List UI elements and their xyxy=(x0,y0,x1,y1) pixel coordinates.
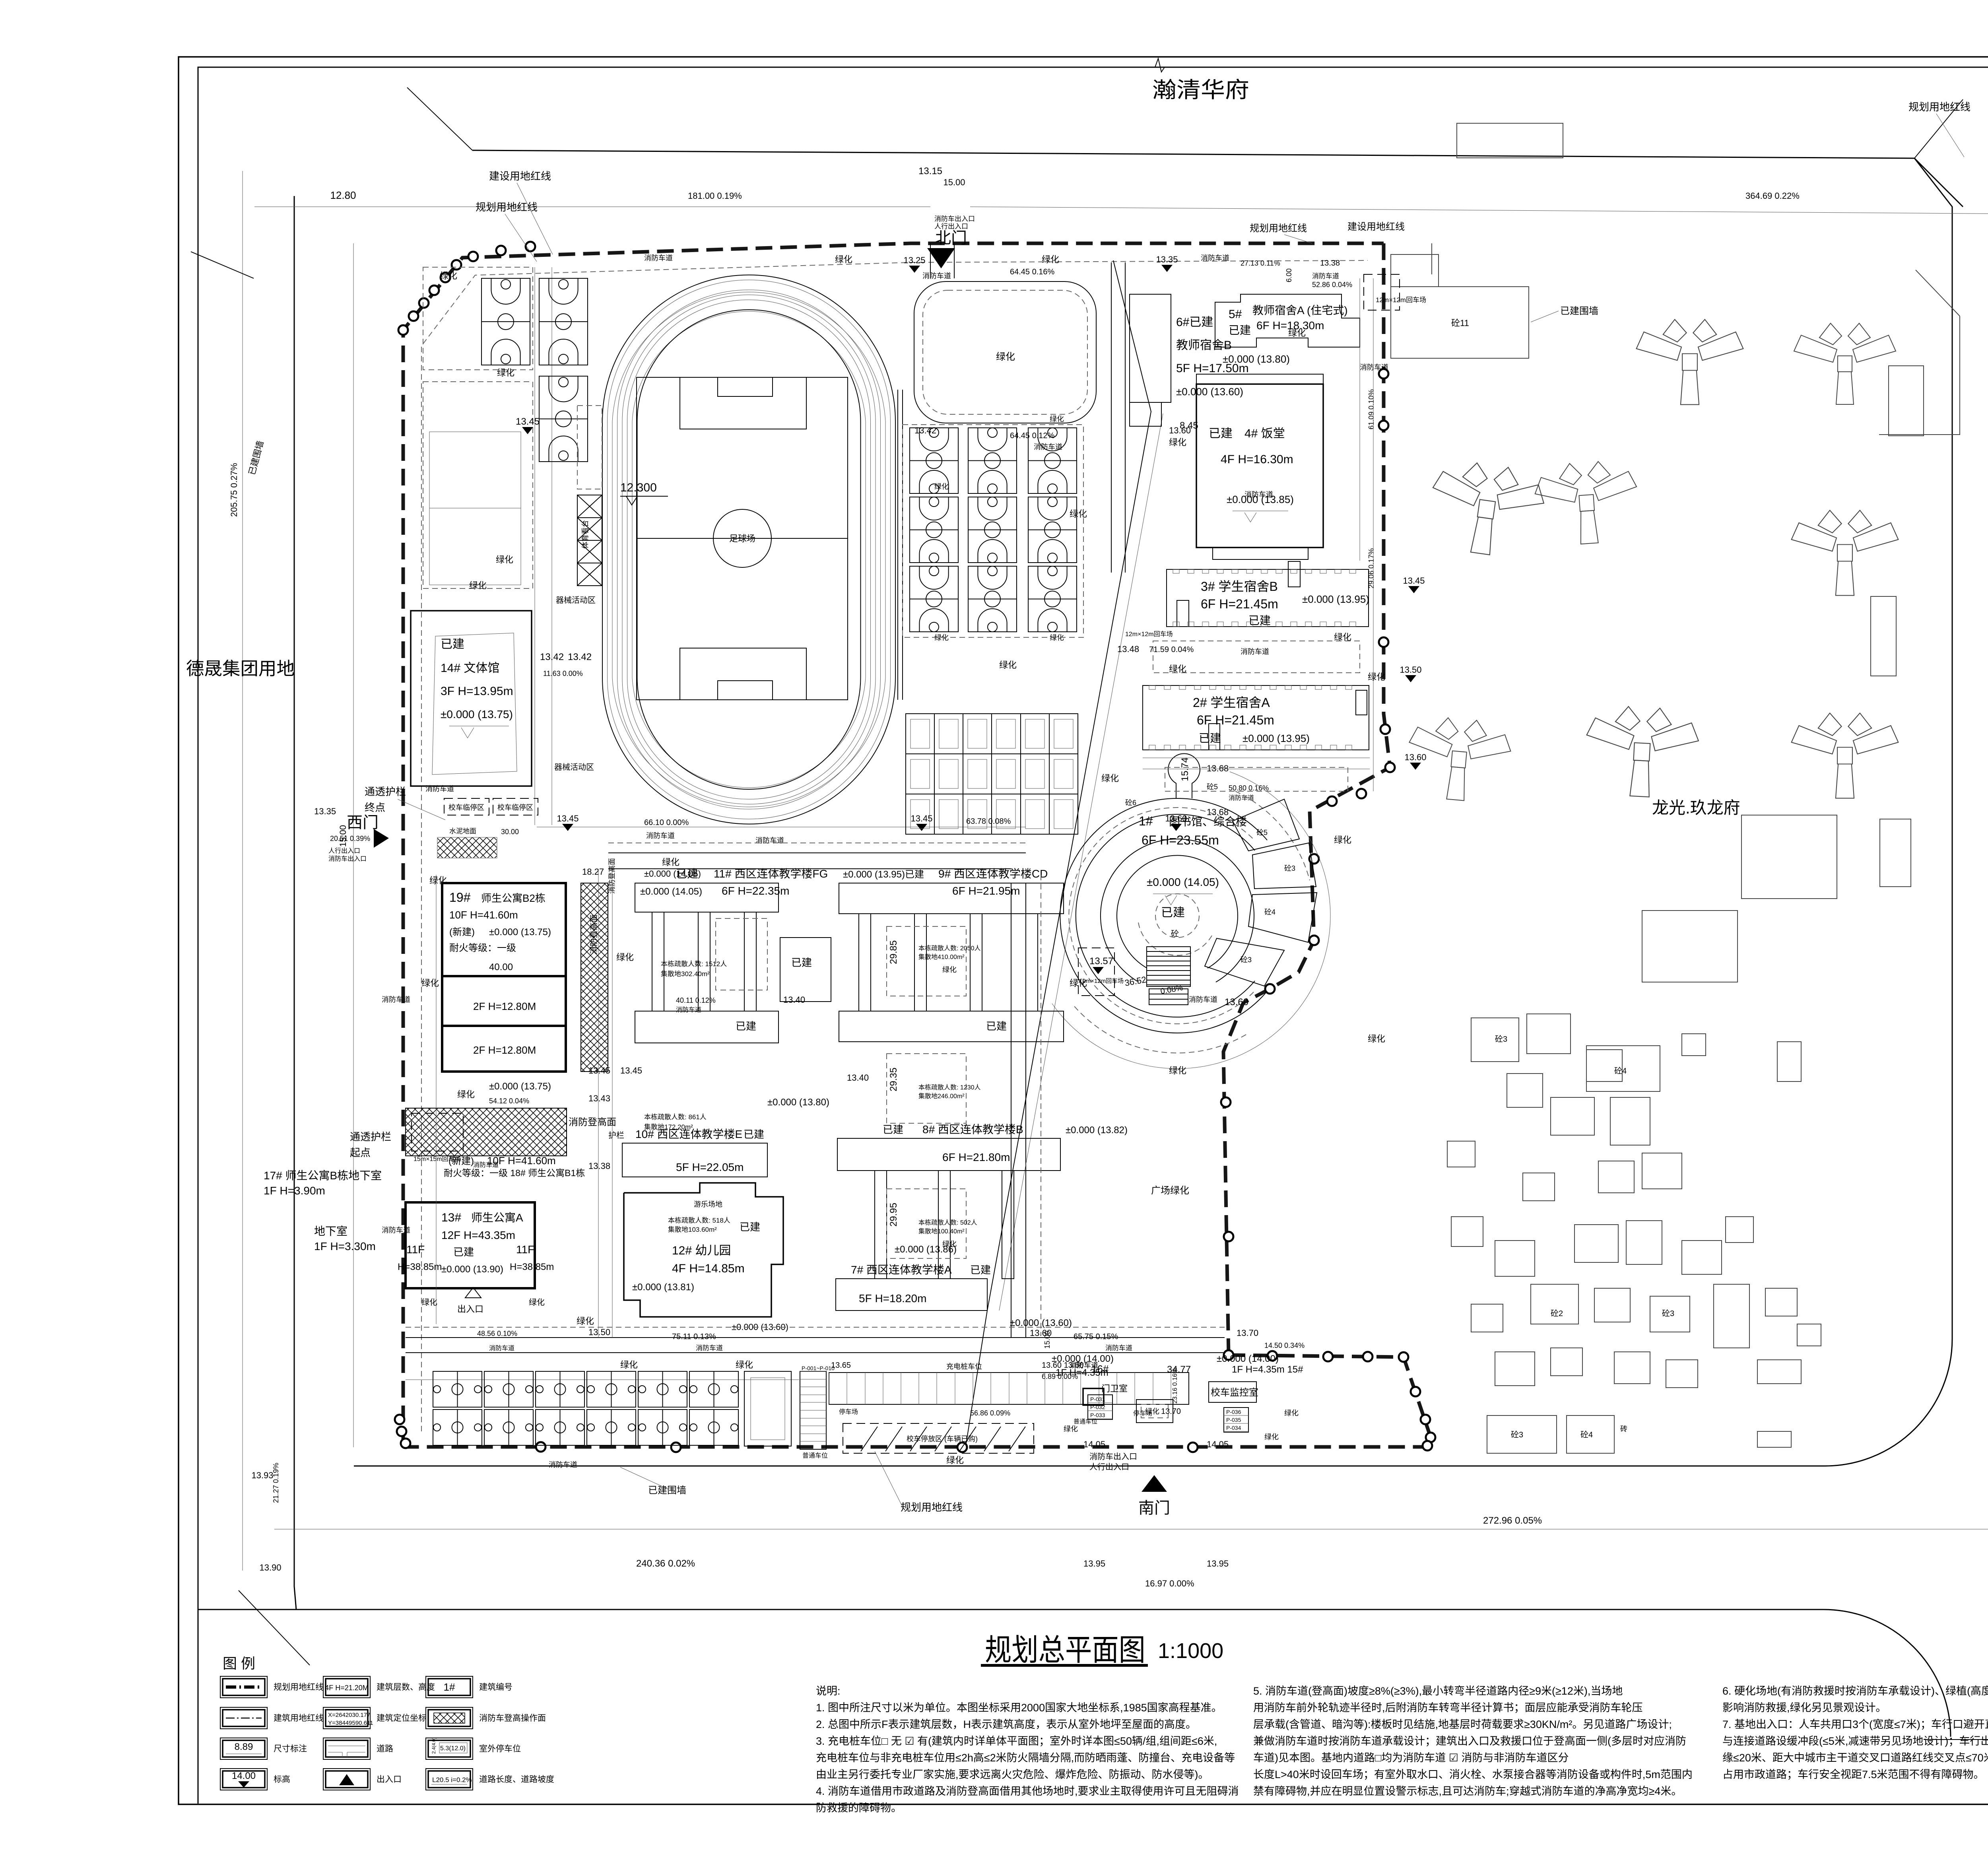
svg-text:已建: 已建 xyxy=(791,957,812,969)
svg-text:X=2642030.177: X=2642030.177 xyxy=(328,1712,370,1718)
svg-text:240.36 0.02%: 240.36 0.02% xyxy=(636,1558,695,1569)
svg-text:13.40: 13.40 xyxy=(783,995,805,1005)
svg-text:绿化: 绿化 xyxy=(469,581,487,590)
svg-text:消防车道: 消防车道 xyxy=(1241,648,1269,656)
svg-text:13.65: 13.65 xyxy=(831,1361,851,1370)
svg-text:13.68: 13.68 xyxy=(1207,763,1229,773)
svg-text:L20.5 i=0.2%: L20.5 i=0.2% xyxy=(432,1776,472,1784)
svg-text:13.93: 13.93 xyxy=(251,1470,273,1480)
svg-text:±0.000 (14.05): ±0.000 (14.05) xyxy=(640,886,702,897)
svg-text:7. 基地出入口：人车共用口3个(宽度≤7米)；车行口避开直: 7. 基地出入口：人车共用口3个(宽度≤7米)；车行口避开直连城市快速路与规划禁… xyxy=(1722,1718,1988,1730)
svg-text:P-035: P-035 xyxy=(1226,1417,1241,1423)
svg-text:364.69 0.22%: 364.69 0.22% xyxy=(1745,191,1800,201)
svg-text:防救援的障碍物。: 防救援的障碍物。 xyxy=(816,1802,902,1814)
svg-text:层承载(含管道、暗沟等):楼板时见结施,地基层时荷载要求≥3: 层承载(含管道、暗沟等):楼板时见结施,地基层时荷载要求≥30KN/m²。另见道… xyxy=(1253,1718,1672,1730)
svg-text:14.00: 14.00 xyxy=(232,1771,256,1781)
svg-text:本栋疏散人数: 1512人: 本栋疏散人数: 1512人 xyxy=(661,960,727,968)
svg-text:绿化: 绿化 xyxy=(1368,672,1385,682)
svg-text:±0.000 (13.90): ±0.000 (13.90) xyxy=(441,1264,503,1275)
svg-text:29.85: 29.85 xyxy=(888,940,899,964)
svg-text:29.06 0.17%: 29.06 0.17% xyxy=(1367,548,1375,588)
svg-text:1:1000: 1:1000 xyxy=(1158,1639,1223,1663)
svg-text:13.48: 13.48 xyxy=(1117,644,1139,654)
svg-text:1F H=3.30m: 1F H=3.30m xyxy=(314,1240,376,1252)
svg-text:出入口: 出入口 xyxy=(457,1304,483,1314)
svg-text:2F H=12.80M: 2F H=12.80M xyxy=(473,1044,536,1056)
svg-text:15.00: 15.00 xyxy=(943,177,965,187)
svg-text:规划总平面图: 规划总平面图 xyxy=(985,1633,1145,1667)
svg-text:北门: 北门 xyxy=(935,229,967,247)
svg-text:13.95: 13.95 xyxy=(1207,1559,1229,1569)
svg-text:西门: 西门 xyxy=(347,814,379,831)
svg-text:建筑定位坐标: 建筑定位坐标 xyxy=(377,1714,427,1723)
svg-text:绿化: 绿化 xyxy=(1042,254,1059,264)
svg-text:兼做消防车道时按消防车道承载设计；建筑出入口及救援口位于登高: 兼做消防车道时按消防车道承载设计；建筑出入口及救援口位于登高面一侧(多层时对应消… xyxy=(1253,1735,1686,1747)
svg-text:已建: 已建 xyxy=(970,1264,991,1276)
svg-text:P-001~P-010: P-001~P-010 xyxy=(802,1365,835,1371)
svg-text:13.45: 13.45 xyxy=(620,1066,642,1076)
svg-text:±0.000 (13.75): ±0.000 (13.75) xyxy=(489,1081,551,1092)
svg-text:8.45: 8.45 xyxy=(1180,420,1198,431)
svg-text:12m×12m回车场: 12m×12m回车场 xyxy=(1125,631,1173,638)
svg-text:建设用地红线: 建设用地红线 xyxy=(1347,221,1405,232)
svg-text:4# 饭堂: 4# 饭堂 xyxy=(1244,427,1285,440)
svg-text:已建: 已建 xyxy=(441,638,464,651)
svg-text:13.43: 13.43 xyxy=(588,1093,610,1103)
svg-text:13.70: 13.70 xyxy=(1237,1328,1258,1338)
svg-text:本栋疏散人数: 1230人: 本栋疏散人数: 1230人 xyxy=(918,1084,981,1091)
svg-text:P-036: P-036 xyxy=(1226,1409,1241,1415)
svg-text:1F H=3.90m: 1F H=3.90m xyxy=(264,1184,325,1197)
svg-text:1. 图中所注尺寸以米为单位。本图坐标采用2000国家大地坐: 1. 图中所注尺寸以米为单位。本图坐标采用2000国家大地坐标系,1985国家高… xyxy=(816,1702,1222,1714)
svg-text:由业主另行委托专业厂家实施,要求远离火灾危险、爆炸危险、防振: 由业主另行委托专业厂家实施,要求远离火灾危险、爆炸危险、防振动、防水侵等)。 xyxy=(816,1769,1209,1780)
svg-text:器械活动区: 器械活动区 xyxy=(556,596,596,605)
svg-text:集散地172.20m²: 集散地172.20m² xyxy=(644,1123,693,1131)
svg-text:14.05: 14.05 xyxy=(1083,1439,1105,1449)
svg-text:体育看台: 体育看台 xyxy=(581,520,589,549)
svg-text:56.86 0.09%: 56.86 0.09% xyxy=(970,1409,1010,1417)
svg-text:绿化: 绿化 xyxy=(1284,1409,1299,1417)
svg-text:3# 学生宿舍B: 3# 学生宿舍B xyxy=(1201,579,1278,594)
svg-text:5F H=22.05m: 5F H=22.05m xyxy=(676,1161,744,1173)
svg-text:消防车道: 消防车道 xyxy=(644,254,673,262)
svg-text:校车停放区 (车辆已购): 校车停放区 (车辆已购) xyxy=(907,1435,978,1443)
svg-text:±0.000 (13.82): ±0.000 (13.82) xyxy=(1066,1125,1128,1136)
svg-text:砼4: 砼4 xyxy=(1264,908,1276,916)
svg-text:消防车道: 消防车道 xyxy=(1105,1344,1132,1352)
svg-text:耐火等级：一级: 耐火等级：一级 xyxy=(449,943,516,953)
svg-text:P-033: P-033 xyxy=(1090,1412,1105,1418)
svg-text:消防车道: 消防车道 xyxy=(1312,272,1339,280)
svg-text:已建围墙: 已建围墙 xyxy=(1560,306,1598,316)
svg-text:18.27: 18.27 xyxy=(582,867,604,877)
svg-text:已建: 已建 xyxy=(1229,324,1251,336)
svg-text:17# 师生公寓B栋地下室: 17# 师生公寓B栋地下室 xyxy=(264,1169,382,1182)
svg-text:砼3: 砼3 xyxy=(1511,1430,1523,1439)
svg-text:P-032: P-032 xyxy=(1090,1404,1105,1410)
svg-text:水泥地面: 水泥地面 xyxy=(449,827,476,835)
svg-text:272.96 0.05%: 272.96 0.05% xyxy=(1483,1515,1542,1526)
svg-text:绿化: 绿化 xyxy=(496,555,513,565)
svg-text:消防车道: 消防车道 xyxy=(1360,363,1388,371)
svg-text:消防车道: 消防车道 xyxy=(473,1161,499,1169)
svg-text:影响消防救援,绿化另见景观设计。: 影响消防救援,绿化另见景观设计。 xyxy=(1722,1702,1887,1714)
svg-text:13.70: 13.70 xyxy=(1161,1407,1181,1416)
svg-text:13.42: 13.42 xyxy=(568,652,592,662)
svg-text:砼: 砼 xyxy=(1171,929,1179,938)
svg-text:建筑用地红线: 建筑用地红线 xyxy=(274,1714,324,1723)
svg-text:13.50: 13.50 xyxy=(588,1327,610,1337)
svg-text:广场绿化: 广场绿化 xyxy=(1151,1185,1189,1196)
svg-text:规划用地红线: 规划用地红线 xyxy=(1908,101,1971,113)
svg-text:P-031: P-031 xyxy=(1090,1396,1105,1402)
svg-text:本栋疏散人数: 502人: 本栋疏散人数: 502人 xyxy=(918,1219,977,1226)
svg-text:±0.000 (13.95): ±0.000 (13.95) xyxy=(1302,593,1369,605)
svg-text:绿化: 绿化 xyxy=(457,1089,475,1099)
svg-text:27.13 0.11%: 27.13 0.11% xyxy=(1241,259,1280,267)
svg-text:消防登高面: 消防登高面 xyxy=(569,1117,616,1128)
svg-text:65.75 0.15%: 65.75 0.15% xyxy=(1074,1332,1118,1341)
svg-text:校车临停区: 校车临停区 xyxy=(497,804,533,812)
svg-text:64.45 0.16%: 64.45 0.16% xyxy=(1010,268,1055,276)
svg-text:集散地302.40m²: 集散地302.40m² xyxy=(661,970,710,978)
svg-text:6F H=23.55m: 6F H=23.55m xyxy=(1142,833,1219,847)
svg-text:终点: 终点 xyxy=(365,802,385,814)
svg-text:±0.000 (13.95)已建: ±0.000 (13.95)已建 xyxy=(843,869,924,880)
svg-text:砼3: 砼3 xyxy=(1495,1035,1507,1044)
svg-text:61.09 0.10%: 61.09 0.10% xyxy=(1367,389,1375,429)
svg-text:消防车道: 消防车道 xyxy=(489,1345,514,1352)
svg-text:21.27 0.19%: 21.27 0.19% xyxy=(272,1463,280,1503)
svg-text:66.10 0.00%: 66.10 0.00% xyxy=(644,818,689,827)
svg-text:消防车道: 消防车道 xyxy=(1244,491,1273,499)
svg-text:40.00: 40.00 xyxy=(489,962,513,973)
svg-text:H=38.85m: H=38.85m xyxy=(510,1262,554,1272)
svg-text:19#: 19# xyxy=(449,890,471,905)
svg-text:6F H=21.95m: 6F H=21.95m xyxy=(952,885,1020,897)
svg-text:缘≤20米、距大中城市主干道交叉口道路红线交叉点≤70米；兼: 缘≤20米、距大中城市主干道交叉口道路红线交叉点≤70米；兼消防车出入口时转弯半… xyxy=(1722,1752,1988,1764)
svg-text:消防车道: 消防车道 xyxy=(646,832,675,840)
svg-text:已建: 已建 xyxy=(744,1128,764,1140)
svg-text:12.300: 12.300 xyxy=(620,481,657,494)
svg-text:绿化: 绿化 xyxy=(577,1316,594,1326)
svg-text:砼5: 砼5 xyxy=(1256,829,1268,837)
svg-text:绿化: 绿化 xyxy=(946,1455,964,1465)
svg-text:5. 消防车道(登高面)坡度≥8%(≥3%),最小转弯半径道: 5. 消防车道(登高面)坡度≥8%(≥3%),最小转弯半径道路内径≥9米(≥12… xyxy=(1253,1685,1623,1697)
svg-text:1F H=4.35m 15#: 1F H=4.35m 15# xyxy=(1232,1364,1303,1375)
svg-text:禁有障碍物,并应在明显位置设警示标志,且可达消防车;穿越式消: 禁有障碍物,并应在明显位置设警示标志,且可达消防车;穿越式消防车道的净高净宽均≥… xyxy=(1253,1785,1682,1797)
svg-text:图书馆、综合楼: 图书馆、综合楼 xyxy=(1169,815,1247,828)
svg-text:已建: 已建 xyxy=(740,1221,760,1233)
svg-text:40.11 0.12%: 40.11 0.12% xyxy=(676,996,716,1004)
svg-text:消防车道: 消防车道 xyxy=(696,1344,723,1352)
svg-text:砖: 砖 xyxy=(1620,1425,1627,1433)
svg-text:教师宿舍B: 教师宿舍B xyxy=(1176,339,1232,352)
svg-text:6F H=21.45m: 6F H=21.45m xyxy=(1197,713,1274,727)
svg-text:8# 西区连体教学楼B: 8# 西区连体教学楼B xyxy=(922,1123,1023,1136)
svg-text:绿化: 绿化 xyxy=(440,271,457,281)
svg-text:砼6: 砼6 xyxy=(1125,799,1136,807)
svg-text:消防车道: 消防车道 xyxy=(676,1006,701,1013)
svg-text:通透护栏: 通透护栏 xyxy=(350,1131,391,1143)
svg-text:已建: 已建 xyxy=(1161,906,1185,919)
svg-text:说明:: 说明: xyxy=(816,1685,841,1697)
svg-text:已建: 已建 xyxy=(1209,427,1233,440)
svg-text:绿化: 绿化 xyxy=(429,876,447,885)
svg-text:消防车道: 消防车道 xyxy=(922,272,951,280)
svg-text:道路长度、道路坡度: 道路长度、道路坡度 xyxy=(479,1775,554,1784)
svg-text:绿化: 绿化 xyxy=(736,1360,753,1370)
svg-text:6.00: 6.00 xyxy=(1285,268,1293,282)
svg-text:绿化: 绿化 xyxy=(1145,1408,1159,1415)
svg-text:1#: 1# xyxy=(1139,814,1153,828)
svg-text:15.00: 15.00 xyxy=(1043,1331,1051,1349)
svg-text:停车场: 停车场 xyxy=(839,1408,858,1415)
svg-text:建筑编号: 建筑编号 xyxy=(479,1683,513,1692)
svg-text:规划用地红线: 规划用地红线 xyxy=(476,201,538,213)
svg-text:13.38: 13.38 xyxy=(588,1161,610,1171)
svg-text:消防车道: 消防车道 xyxy=(1070,1361,1098,1369)
svg-text:(新建): (新建) xyxy=(449,927,475,938)
svg-text:砼3: 砼3 xyxy=(1284,864,1295,872)
svg-text:用消防车前外轮轨迹半径时,后附消防车转弯半径计算书；面层应能: 用消防车前外轮轨迹半径时,后附消防车转弯半径计算书；面层应能承受消防车轮压 xyxy=(1253,1702,1643,1714)
svg-text:建设用地红线: 建设用地红线 xyxy=(489,170,551,182)
svg-text:14.05: 14.05 xyxy=(1207,1439,1229,1449)
svg-text:6F H=22.35m: 6F H=22.35m xyxy=(722,885,789,897)
svg-text:±0.000 (13.81): ±0.000 (13.81) xyxy=(632,1282,694,1293)
svg-text:3. 充电桩车位□ 无 ☑ 有(建筑内时详单体平面图；室外时: 3. 充电桩车位□ 无 ☑ 有(建筑内时详单体平面图；室外时详本图≤50辆/组,… xyxy=(816,1735,1217,1747)
svg-text:本栋疏散人数: 861人: 本栋疏散人数: 861人 xyxy=(644,1113,707,1121)
svg-text:±0.000 (13.75): ±0.000 (13.75) xyxy=(489,927,551,938)
svg-text:消防车道: 消防车道 xyxy=(1229,794,1254,802)
svg-text:耐火等级：一级 18# 师生公寓B1栋: 耐火等级：一级 18# 师生公寓B1栋 xyxy=(444,1168,585,1178)
svg-text:11# 西区连体教学楼FG: 11# 西区连体教学楼FG xyxy=(714,868,828,880)
svg-text:门卫室: 门卫室 xyxy=(1101,1384,1128,1394)
svg-text:德晟集团用地: 德晟集团用地 xyxy=(186,658,295,679)
svg-text:绿化: 绿化 xyxy=(1288,328,1306,338)
svg-text:±0.000 (13.86): ±0.000 (13.86) xyxy=(895,1244,957,1255)
svg-text:15.74: 15.74 xyxy=(1180,757,1190,781)
svg-text:±0.000 (13.80): ±0.000 (13.80) xyxy=(767,1097,829,1108)
svg-text:10F H=41.60m: 10F H=41.60m xyxy=(449,909,518,921)
svg-text:砼4: 砼4 xyxy=(1614,1066,1627,1076)
svg-text:34.77: 34.77 xyxy=(1167,1364,1191,1375)
svg-text:集散地246.00m²: 集散地246.00m² xyxy=(918,1093,965,1100)
svg-text:15m×15m回车场: 15m×15m回车场 xyxy=(414,1155,461,1163)
svg-text:54.12 0.04%: 54.12 0.04% xyxy=(489,1097,529,1105)
svg-text:±0.000 (13.95): ±0.000 (13.95) xyxy=(1242,732,1310,744)
svg-text:3F H=13.95m: 3F H=13.95m xyxy=(441,685,513,698)
svg-text:11F: 11F xyxy=(406,1243,425,1256)
svg-text:砼4: 砼4 xyxy=(1580,1430,1593,1439)
svg-text:道路: 道路 xyxy=(377,1744,393,1753)
svg-text:绿化: 绿化 xyxy=(616,952,634,962)
svg-text:13.95: 13.95 xyxy=(1083,1559,1105,1569)
svg-text:绿化: 绿化 xyxy=(529,1298,545,1307)
svg-text:规划用地红线: 规划用地红线 xyxy=(274,1683,324,1692)
svg-text:绿化: 绿化 xyxy=(1070,978,1087,988)
svg-text:消防车出入口: 消防车出入口 xyxy=(328,855,367,862)
svg-text:±0.000 (14.00): ±0.000 (14.00) xyxy=(1217,1353,1279,1364)
svg-text:48.56 0.10%: 48.56 0.10% xyxy=(477,1330,517,1338)
svg-text:H=38.85m: H=38.85m xyxy=(398,1262,442,1272)
svg-text:起点: 起点 xyxy=(350,1147,371,1159)
svg-text:护栏: 护栏 xyxy=(608,1131,624,1140)
svg-text:校车监控室: 校车监控室 xyxy=(1211,1387,1258,1398)
svg-text:5#: 5# xyxy=(1229,308,1242,321)
svg-text:绿化: 绿化 xyxy=(421,1298,437,1307)
svg-text:52.86 0.04%: 52.86 0.04% xyxy=(1312,281,1352,289)
svg-text:绿化: 绿化 xyxy=(1101,773,1119,783)
svg-text:砼11: 砼11 xyxy=(1451,318,1469,328)
svg-text:±0.000 (13.75): ±0.000 (13.75) xyxy=(441,708,513,720)
svg-text:13.38: 13.38 xyxy=(1320,259,1340,268)
svg-text:教师宿舍A (住宅式): 教师宿舍A (住宅式) xyxy=(1252,304,1348,316)
svg-text:绿化: 绿化 xyxy=(662,857,679,867)
svg-text:瀚清华府: 瀚清华府 xyxy=(1152,78,1249,102)
svg-text:消防车道: 消防车道 xyxy=(425,785,454,793)
svg-text:集散地100.40m²: 集散地100.40m² xyxy=(918,1228,965,1235)
svg-text:13.60: 13.60 xyxy=(1404,752,1426,762)
svg-text:绿化: 绿化 xyxy=(942,966,957,974)
svg-text:4F H=21.20M: 4F H=21.20M xyxy=(325,1684,369,1692)
svg-text:7# 西区连体教学楼A: 7# 西区连体教学楼A xyxy=(851,1264,952,1276)
svg-text:4. 消防车道借用市政道路及消防登高面借用其他场地时,要求业: 4. 消防车道借用市政道路及消防登高面借用其他场地时,要求业主取得使用许可且无阻… xyxy=(816,1785,1239,1797)
svg-text:校车临停区: 校车临停区 xyxy=(448,804,484,812)
svg-text:13.60: 13.60 xyxy=(1225,997,1248,1008)
svg-text:12# 幼儿园: 12# 幼儿园 xyxy=(672,1244,731,1257)
svg-text:出入口: 出入口 xyxy=(377,1775,402,1784)
svg-text:Y=38449590.611: Y=38449590.611 xyxy=(328,1720,373,1726)
svg-text:已建: 已建 xyxy=(1199,732,1221,744)
svg-text:绿化: 绿化 xyxy=(620,1360,638,1370)
svg-text:±0.000 (14.05): ±0.000 (14.05) xyxy=(644,869,701,879)
svg-text:已建: 已建 xyxy=(986,1020,1007,1032)
svg-text:图 例: 图 例 xyxy=(223,1655,255,1672)
svg-text:本栋疏散人数: 518人: 本栋疏散人数: 518人 xyxy=(668,1217,730,1224)
svg-text:消防车出入口: 消防车出入口 xyxy=(934,215,975,223)
svg-text:12m×12m回车场: 12m×12m回车场 xyxy=(1376,296,1426,304)
svg-text:消防登高面: 消防登高面 xyxy=(589,914,598,954)
svg-text:消防车道: 消防车道 xyxy=(549,1461,577,1469)
svg-text:13#: 13# xyxy=(441,1211,461,1224)
svg-text:13.45: 13.45 xyxy=(516,416,540,427)
svg-text:长度L>40米时设回车场；有室外取水口、消火栓、水泵接合器等: 长度L>40米时设回车场；有室外取水口、消火栓、水泵接合器等消防设备或构件时,5… xyxy=(1253,1769,1693,1780)
svg-text:P-034: P-034 xyxy=(1226,1425,1241,1431)
svg-text:14.50 0.34%: 14.50 0.34% xyxy=(1264,1342,1305,1349)
svg-text:集散地103.60m²: 集散地103.60m² xyxy=(668,1226,717,1233)
svg-text:绿化: 绿化 xyxy=(996,351,1015,362)
svg-text:12F H=43.35m: 12F H=43.35m xyxy=(441,1229,515,1241)
svg-text:绿化: 绿化 xyxy=(1334,835,1351,845)
svg-text:20.51 0.39%: 20.51 0.39% xyxy=(330,835,370,843)
svg-text:6. 硬化场地(有消防救援时按消防车承载设计)、绿植(高度要: 6. 硬化场地(有消防救援时按消防车承载设计)、绿植(高度要求≥4米)、架空管线… xyxy=(1722,1685,1988,1697)
svg-text:标高: 标高 xyxy=(274,1775,290,1784)
svg-text:13.42: 13.42 xyxy=(914,425,936,435)
svg-text:2F H=12.80M: 2F H=12.80M xyxy=(473,1000,536,1012)
svg-text:器械活动区: 器械活动区 xyxy=(554,763,594,772)
svg-text:4F H=16.30m: 4F H=16.30m xyxy=(1221,453,1293,466)
svg-text:5.3(12.0): 5.3(12.0) xyxy=(440,1745,466,1752)
svg-text:已建围墙: 已建围墙 xyxy=(648,1485,686,1496)
svg-text:绿化: 绿化 xyxy=(835,254,852,264)
svg-text:13.45: 13.45 xyxy=(911,814,932,823)
svg-text:29.95: 29.95 xyxy=(888,1203,899,1227)
svg-text:规划用地红线: 规划用地红线 xyxy=(901,1501,963,1513)
svg-text:1#: 1# xyxy=(444,1681,455,1693)
svg-text:2.4(4.0): 2.4(4.0) xyxy=(431,1738,437,1754)
svg-text:6F H=21.80m: 6F H=21.80m xyxy=(942,1151,1010,1163)
svg-text:师生公寓B2栋: 师生公寓B2栋 xyxy=(481,892,546,904)
svg-text:游乐场地: 游乐场地 xyxy=(694,1200,722,1208)
svg-text:13.25: 13.25 xyxy=(903,255,925,265)
svg-text:63.78 0.08%: 63.78 0.08% xyxy=(966,817,1011,826)
svg-text:11.63 0.00%: 11.63 0.00% xyxy=(543,670,583,678)
svg-text:16.97 0.00%: 16.97 0.00% xyxy=(1145,1578,1194,1588)
svg-text:13.45: 13.45 xyxy=(1403,576,1425,586)
svg-text:人行出入口: 人行出入口 xyxy=(934,223,968,230)
svg-text:已建: 已建 xyxy=(453,1246,474,1258)
svg-text:师生公寓A: 师生公寓A xyxy=(471,1212,523,1224)
svg-text:占用市政道路；车行安全视距7.5米范围不得有障碍物。: 占用市政道路；车行安全视距7.5米范围不得有障碍物。 xyxy=(1722,1769,1984,1780)
svg-text:人行出入口: 人行出入口 xyxy=(328,847,360,854)
svg-text:龙光.玖龙府: 龙光.玖龙府 xyxy=(1652,798,1740,817)
svg-text:13.50: 13.50 xyxy=(1400,665,1421,675)
svg-text:通透护栏: 通透护栏 xyxy=(365,786,406,798)
svg-text:205.75 0.27%: 205.75 0.27% xyxy=(229,463,239,517)
svg-text:13.35: 13.35 xyxy=(1156,254,1178,264)
svg-text:已建: 已建 xyxy=(736,1020,756,1032)
svg-text:13.42: 13.42 xyxy=(540,652,564,662)
svg-text:砼3: 砼3 xyxy=(1241,956,1252,964)
svg-text:足球场: 足球场 xyxy=(729,534,755,544)
svg-text:消防车道: 消防车道 xyxy=(1201,254,1229,262)
svg-text:±0.000 (13.80): ±0.000 (13.80) xyxy=(1223,353,1290,365)
svg-text:消防车出入口: 消防车出入口 xyxy=(1089,1452,1137,1461)
svg-text:消防登高面: 消防登高面 xyxy=(608,858,616,894)
svg-text:绿化: 绿化 xyxy=(1169,437,1186,447)
svg-text:13.40: 13.40 xyxy=(847,1073,869,1083)
svg-text:绿化: 绿化 xyxy=(1264,1433,1279,1441)
svg-text:±0.000 (14.05): ±0.000 (14.05) xyxy=(1147,876,1219,888)
svg-text:8.89: 8.89 xyxy=(235,1742,253,1752)
svg-text:9# 西区连体教学楼CD: 9# 西区连体教学楼CD xyxy=(938,868,1048,880)
svg-text:181.00 0.19%: 181.00 0.19% xyxy=(688,191,742,201)
svg-text:14# 文体馆: 14# 文体馆 xyxy=(441,662,499,675)
svg-text:与连接道路设缓冲段(≤5米,减速带另见场地设计)；车行出入口: 与连接道路设缓冲段(≤5米,减速带另见场地设计)；车行出入口距中小学、幼儿园出入… xyxy=(1722,1735,1988,1747)
svg-text:2# 学生宿舍A: 2# 学生宿舍A xyxy=(1193,695,1270,710)
svg-text:人行出入口: 人行出入口 xyxy=(1089,1462,1129,1472)
svg-text:地下室: 地下室 xyxy=(314,1225,348,1237)
svg-text:消防车登高操作面: 消防车登高操作面 xyxy=(479,1714,546,1723)
svg-text:5F H=18.20m: 5F H=18.20m xyxy=(859,1292,926,1305)
svg-text:绿化: 绿化 xyxy=(934,483,949,491)
svg-text:绿化: 绿化 xyxy=(1064,1425,1078,1433)
svg-text:绿化: 绿化 xyxy=(497,368,514,378)
svg-text:砼3: 砼3 xyxy=(1662,1309,1674,1318)
svg-text:75.11 0.13%: 75.11 0.13% xyxy=(672,1332,716,1341)
svg-text:11F: 11F xyxy=(516,1243,534,1256)
svg-text:已建: 已建 xyxy=(883,1124,903,1136)
svg-text:绿化: 绿化 xyxy=(1070,509,1087,519)
svg-text:消防车道: 消防车道 xyxy=(382,1226,410,1234)
svg-text:砼5: 砼5 xyxy=(1207,783,1218,791)
svg-text:71.59 0.04%: 71.59 0.04% xyxy=(1149,645,1194,654)
svg-text:±0.000 (13.60): ±0.000 (13.60) xyxy=(1176,386,1243,398)
svg-text:4F H=14.85m: 4F H=14.85m xyxy=(672,1262,745,1275)
svg-text:13.15: 13.15 xyxy=(918,166,942,177)
svg-text:规划用地红线: 规划用地红线 xyxy=(1250,223,1307,234)
